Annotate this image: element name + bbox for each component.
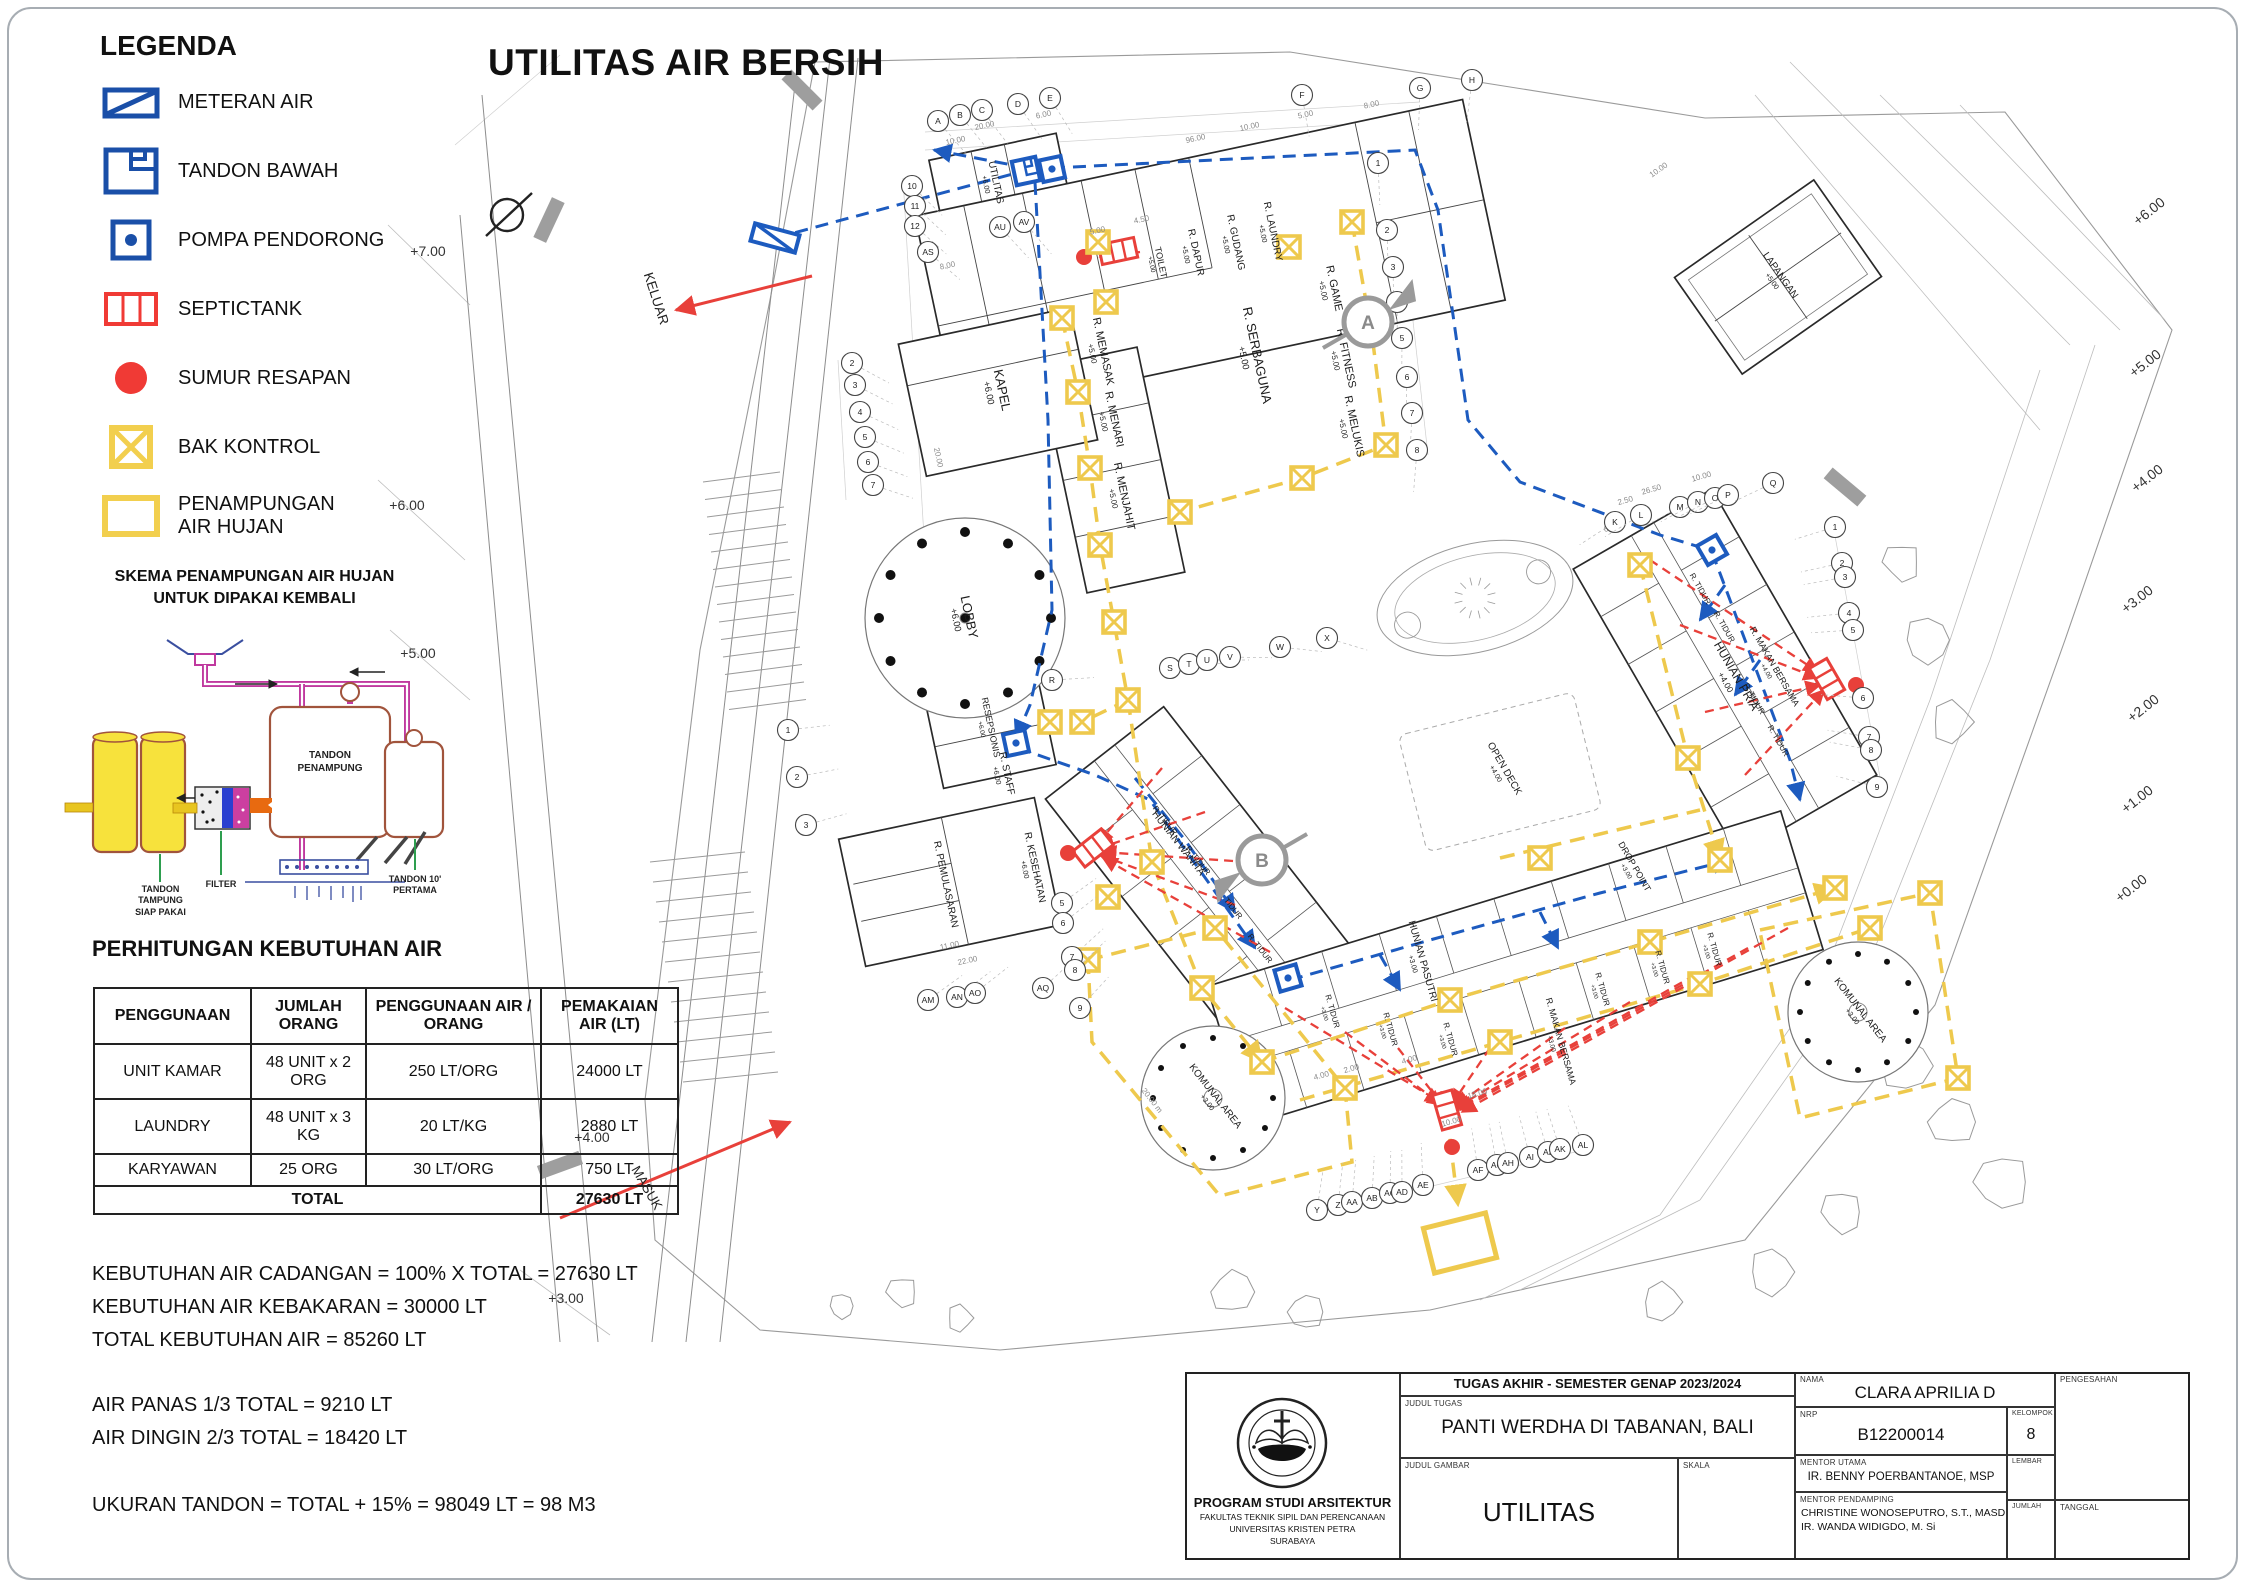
svg-text:2: 2: [795, 772, 800, 782]
svg-text:4: 4: [858, 407, 863, 417]
svg-text:B: B: [1255, 851, 1269, 872]
grid-bubble: A: [928, 111, 949, 132]
grid-bubble: AE: [1413, 1175, 1434, 1196]
kelompok-label: KELOMPOK: [2012, 1410, 2053, 1417]
svg-text:AE: AE: [1417, 1180, 1429, 1190]
legend-item-label: TANDON BAWAH: [178, 160, 338, 183]
grid-bubble: 11: [905, 196, 926, 217]
sumur-symbol: [1060, 845, 1076, 861]
sheet-title: UTILITAS: [1401, 1497, 1677, 1528]
booster-pump-icon: [100, 214, 162, 266]
svg-text:22.00: 22.00: [957, 954, 979, 967]
svg-text:Z: Z: [1335, 1200, 1340, 1210]
titleblock-kelompok-cell: KELOMPOK 8: [2007, 1407, 2055, 1455]
svg-text:KELUAR: KELUAR: [641, 271, 672, 327]
titleblock-skala-cell: SKALA: [1678, 1458, 1795, 1560]
legend-item-label: METERAN AIR: [178, 91, 314, 114]
legend-title: LEGENDA: [100, 30, 480, 62]
grid-bubble: D: [1008, 94, 1029, 115]
svg-text:6: 6: [1061, 918, 1066, 928]
grid-bubble: 5: [855, 427, 876, 448]
grid-bubble: 10: [902, 176, 923, 197]
grid-bubble: 2: [1377, 220, 1398, 241]
svg-text:5: 5: [1400, 333, 1405, 343]
svg-text:2.50: 2.50: [1617, 494, 1635, 507]
legend-item-meteran-air: METERAN AIR: [100, 76, 480, 128]
grid-bubble: AQ: [1033, 978, 1054, 999]
pond: [1365, 521, 1585, 674]
control-box-icon: [100, 421, 162, 473]
svg-text:F: F: [1299, 90, 1304, 100]
grid-bubble: AA: [1342, 1192, 1363, 1213]
institution-university: UNIVERSITAS KRISTEN PETRA: [1186, 1524, 1399, 1535]
titleblock-course-cell: TUGAS AKHIR - SEMESTER GENAP 2023/2024: [1400, 1372, 1795, 1396]
svg-text:10.00: 10.00: [1690, 469, 1712, 483]
mentor-utama-name: IR. BENNY POERBANTANOE, MSP: [1796, 1471, 2006, 1483]
grid-bubble: AF: [1468, 1160, 1489, 1181]
svg-text:8.00: 8.00: [1363, 98, 1381, 110]
legend-item-label: POMPA PENDORONG: [178, 229, 384, 252]
svg-text:U: U: [1204, 655, 1210, 665]
legend-panel: LEGENDA METERAN AIR TANDON BAWAH POMPA P…: [100, 30, 480, 559]
table-cell: 750 LT: [541, 1154, 678, 1186]
bak-symbol: [1629, 554, 1651, 576]
pump-symbol: [1274, 964, 1301, 991]
svg-text:L: L: [1639, 510, 1644, 520]
svg-text:7: 7: [1410, 408, 1415, 418]
legend-item-penampungan: PENAMPUNGAN AIR HUJAN: [100, 490, 480, 542]
schema-label-tandon-pertama: TANDON 10' PERTAMA: [377, 874, 453, 897]
svg-text:Y: Y: [1314, 1205, 1320, 1215]
svg-text:G: G: [1417, 83, 1424, 93]
table-header-cell: PEMAKAIAN AIR (LT): [541, 988, 678, 1044]
skala-label: SKALA: [1683, 1461, 1710, 1470]
mentor-utama-label: MENTOR UTAMA: [1800, 1458, 1867, 1467]
grid-bubble: 9: [1070, 998, 1091, 1019]
svg-text:10.00: 10.00: [945, 134, 967, 147]
grid-bubble: 4: [850, 402, 871, 423]
mentor-pendamping-name-2: IR. WANDA WIDIGDO, M. Si: [1796, 1521, 2006, 1533]
svg-text:11: 11: [911, 201, 920, 211]
tandon-symbol: [1012, 157, 1040, 185]
svg-text:9: 9: [1875, 782, 1880, 792]
site-entry-arrow: [676, 276, 812, 310]
bak-symbol: [1067, 381, 1089, 403]
table-header-cell: PENGGUNAAN AIR / ORANG: [366, 988, 541, 1044]
nrp-label: NRP: [1800, 1410, 1818, 1419]
table-cell: 250 LT/ORG: [366, 1044, 541, 1099]
sumur-symbol: [1444, 1139, 1460, 1155]
table-cell: 48 UNIT x 2 ORG: [251, 1044, 366, 1099]
svg-text:20.00: 20.00: [974, 119, 996, 132]
bak-symbol: [1141, 851, 1163, 873]
bak-symbol: [1079, 457, 1101, 479]
bak-symbol: [1709, 849, 1731, 871]
grid-bubble: S: [1160, 658, 1181, 679]
grid-bubble: 8: [1861, 740, 1882, 761]
svg-text:9: 9: [1078, 1003, 1083, 1013]
table-cell: 48 UNIT x 3 KG: [251, 1099, 366, 1154]
svg-text:+6.00: +6.00: [2130, 194, 2168, 229]
legend-item-bak-kontrol: BAK KONTROL: [100, 421, 480, 473]
svg-text:10.00: 10.00: [1648, 160, 1670, 179]
table-cell: 25 ORG: [251, 1154, 366, 1186]
svg-text:D: D: [1015, 99, 1021, 109]
svg-text:7: 7: [871, 480, 876, 490]
grid-bubble: AV: [1014, 212, 1035, 233]
room-label: R. MELUKIS+5.00: [1332, 395, 1366, 460]
svg-text:+2.00: +2.00: [2124, 691, 2162, 726]
institution-faculty: FAKULTAS TEKNIK SIPIL DAN PERENCANAAN: [1186, 1512, 1399, 1523]
titleblock-jumlah-cell: JUMLAH: [2007, 1500, 2055, 1560]
grid-bubble: AD: [1392, 1182, 1413, 1203]
bak-symbol: [1919, 882, 1941, 904]
svg-text:+3.00: +3.00: [2118, 582, 2156, 617]
grid-bubble: 9: [1867, 777, 1888, 798]
note-line: TOTAL KEBUTUHAN AIR = 85260 LT: [92, 1324, 638, 1357]
grid-bubble: AL: [1573, 1135, 1594, 1156]
svg-text:5: 5: [1060, 898, 1065, 908]
grid-bubble: 6: [1853, 688, 1874, 709]
grid-bubble: 5: [1843, 620, 1864, 641]
bak-symbol: [1071, 711, 1093, 733]
grid-bubble: 2: [842, 353, 863, 374]
titleblock-mentor-pendamping-cell: MENTOR PENDAMPING CHRISTINE WONOSEPUTRO,…: [1795, 1492, 2007, 1560]
grid-bubble: 8: [1065, 960, 1086, 981]
institution-name: PROGRAM STUDI ARSITEKTUR: [1186, 1495, 1399, 1512]
titleblock-pengesahan-cell: PENGESAHAN: [2055, 1372, 2190, 1500]
titleblock-tanggal-cell: TANGGAL: [2055, 1500, 2190, 1560]
svg-text:6.00: 6.00: [1035, 108, 1053, 120]
bak-symbol: [1947, 1067, 1969, 1089]
bak-symbol: [1051, 307, 1073, 329]
svg-text:X: X: [1324, 633, 1330, 643]
tanggal-label: TANGGAL: [2060, 1503, 2099, 1512]
page-title: UTILITAS AIR BERSIH: [488, 42, 884, 84]
svg-text:5: 5: [1851, 625, 1856, 635]
bak-symbol: [1529, 847, 1551, 869]
table-cell: LAUNDRY: [94, 1099, 251, 1154]
legend-item-tandon-bawah: TANDON BAWAH: [100, 145, 480, 197]
grid-bubble: 2: [787, 767, 808, 788]
grid-bubble: X: [1317, 628, 1338, 649]
grid-bubble: B: [950, 105, 971, 126]
course-title: TUGAS AKHIR - SEMESTER GENAP 2023/2024: [1401, 1376, 1794, 1391]
drawing-sheet: UTILITAS+6.00TOILET+5.00R. DAPUR+5.00R. …: [0, 0, 2245, 1587]
grid-bubble: 3: [1835, 567, 1856, 588]
institution-city: SURABAYA: [1186, 1536, 1399, 1547]
jumlah-label: JUMLAH: [2012, 1503, 2041, 1510]
grid-bubble: 12: [905, 216, 926, 237]
grid-bubble: G: [1410, 78, 1431, 99]
svg-text:AS: AS: [922, 247, 934, 257]
judul-tugas-label: JUDUL TUGAS: [1405, 1399, 1462, 1408]
note-line: UKURAN TANDON = TOTAL + 15% = 98049 LT =…: [92, 1489, 596, 1522]
bak-symbol: [1824, 877, 1846, 899]
svg-text:1: 1: [1376, 158, 1381, 168]
svg-text:AF: AF: [1473, 1165, 1484, 1175]
grid-bubble: 5: [1392, 328, 1413, 349]
svg-text:+1.00: +1.00: [2118, 782, 2156, 817]
table-cell: KARYAWAN: [94, 1154, 251, 1186]
bak-symbol: [1689, 973, 1711, 995]
table-header-cell: PENGGUNAAN: [94, 988, 251, 1044]
svg-text:AK: AK: [1554, 1144, 1566, 1154]
grid-bubble: L: [1631, 505, 1652, 526]
grid-bubble: AU: [990, 217, 1011, 238]
svg-text:3: 3: [804, 820, 809, 830]
grid-bubble: AH: [1498, 1153, 1519, 1174]
svg-text:A: A: [935, 116, 941, 126]
svg-text:3: 3: [1391, 262, 1396, 272]
grid-bubble: E: [1040, 88, 1061, 109]
svg-text:5: 5: [863, 432, 868, 442]
penampungan-symbol: [1423, 1213, 1496, 1273]
svg-text:Q: Q: [1770, 478, 1777, 488]
grid-bubble: 6: [1397, 367, 1418, 388]
bak-symbol: [1089, 534, 1111, 556]
skema-title: SKEMA PENAMPUNGAN AIR HUJAN UNTUK DIPAKA…: [62, 566, 447, 609]
svg-text:T: T: [1186, 659, 1191, 669]
svg-text:AA: AA: [1346, 1197, 1358, 1207]
table-total-value: 27630 LT: [541, 1186, 678, 1214]
bak-symbol: [1334, 1077, 1356, 1099]
svg-text:AI: AI: [1526, 1152, 1534, 1162]
table-cell: 24000 LT: [541, 1044, 678, 1099]
svg-text:2: 2: [850, 358, 855, 368]
titleblock-lembar-cell: LEMBAR: [2007, 1455, 2055, 1500]
svg-text:AL: AL: [1578, 1140, 1589, 1150]
titleblock-mentor-utama-cell: MENTOR UTAMA IR. BENNY POERBANTANOE, MSP: [1795, 1455, 2007, 1492]
bak-symbol: [1291, 467, 1313, 489]
mentor-pendamping-name-1: CHRISTINE WONOSEPUTRO, S.T., MASD: [1796, 1507, 2006, 1519]
grid-bubble: 1: [1825, 517, 1846, 538]
mentor-pendamping-label: MENTOR PENDAMPING: [1800, 1495, 1894, 1504]
student-id: B12200014: [1796, 1425, 2006, 1445]
svg-text:6: 6: [1861, 693, 1866, 703]
svg-text:+4.00: +4.00: [2128, 461, 2166, 496]
note-line: KEBUTUHAN AIR CADANGAN = 100% X TOTAL = …: [92, 1258, 638, 1291]
bak-symbol: [1341, 211, 1363, 233]
grid-bubble: 7: [1402, 403, 1423, 424]
titleblock-judul-tugas-cell: JUDUL TUGAS PANTI WERDHA DI TABANAN, BAL…: [1400, 1396, 1795, 1458]
svg-text:AN: AN: [951, 992, 963, 1002]
svg-text:AD: AD: [1396, 1187, 1408, 1197]
svg-text:3: 3: [853, 380, 858, 390]
legend-item-label: SEPTICTANK: [178, 298, 302, 321]
legend-item-pompa-pendorong: POMPA PENDORONG: [100, 214, 480, 266]
grid-bubble: 6: [1053, 913, 1074, 934]
legend-item-label: SUMUR RESAPAN: [178, 367, 351, 390]
svg-text:R: R: [1049, 675, 1055, 685]
schema-label-tandon-penampung: TANDON PENAMPUNG: [272, 750, 388, 775]
svg-text:H: H: [1469, 75, 1475, 85]
svg-text:6: 6: [1405, 372, 1410, 382]
water-meter-icon: [100, 76, 162, 128]
svg-text:5.00: 5.00: [1297, 108, 1315, 120]
soak-well-icon: [100, 352, 162, 404]
grid-bubble: 3: [796, 815, 817, 836]
bak-symbol: [1103, 611, 1125, 633]
svg-text:8: 8: [1073, 965, 1078, 975]
grid-bubble: AN: [947, 987, 968, 1008]
svg-text:+5.00: +5.00: [2126, 346, 2164, 381]
grid-bubble: P: [1718, 485, 1739, 506]
titleblock-judul-gambar-cell: JUDUL GAMBAR UTILITAS: [1400, 1458, 1678, 1560]
rainwater-schema: TANDON PENAMPUNG TANDON TAMPUNG SIAP PAK…: [55, 632, 445, 927]
rainwater-storage-icon: [100, 490, 162, 542]
judul-gambar-label: JUDUL GAMBAR: [1405, 1461, 1470, 1470]
svg-text:W: W: [1276, 642, 1284, 652]
svg-text:B: B: [957, 110, 963, 120]
svg-text:6: 6: [866, 457, 871, 467]
svg-text:AQ: AQ: [1037, 983, 1050, 993]
svg-text:26.50: 26.50: [1640, 482, 1662, 496]
table-cell: 2880 LT: [541, 1099, 678, 1154]
svg-text:AM: AM: [922, 995, 935, 1005]
titleblock-logo-cell: PROGRAM STUDI ARSITEKTUR FAKULTAS TEKNIK…: [1185, 1372, 1400, 1560]
bak-symbol: [1039, 711, 1061, 733]
bak-symbol: [1095, 291, 1117, 313]
bak-symbol: [1204, 917, 1226, 939]
schema-label-filter: FILTER: [186, 879, 256, 890]
grid-bubble: U: [1197, 650, 1218, 671]
grid-bubble: Y: [1307, 1200, 1328, 1221]
student-name: CLARA APRILIA D: [1796, 1383, 2054, 1403]
grid-bubble: F: [1292, 85, 1313, 106]
project-title: PANTI WERDHA DI TABANAN, BALI: [1401, 1417, 1794, 1439]
legend-item-sumur-resapan: SUMUR RESAPAN: [100, 352, 480, 404]
grid-bubble: Q: [1763, 473, 1784, 494]
bak-symbol: [1375, 434, 1397, 456]
titleblock-nama-cell: NAMA CLARA APRILIA D: [1795, 1372, 2055, 1407]
pump-symbol: [1039, 156, 1065, 182]
svg-text:3: 3: [1843, 572, 1848, 582]
svg-text:AO: AO: [969, 988, 982, 998]
svg-text:1: 1: [1833, 522, 1838, 532]
legend-item-septictank: SEPTICTANK: [100, 283, 480, 335]
svg-text:AU: AU: [994, 222, 1006, 232]
water-demand-table: PENGGUNAANJUMLAH ORANGPENGGUNAAN AIR / O…: [93, 987, 679, 1215]
titleblock-nrp-cell: NRP B12200014: [1795, 1407, 2007, 1455]
svg-text:AB: AB: [1366, 1193, 1378, 1203]
bak-symbol: [1169, 501, 1191, 523]
svg-text:12: 12: [910, 221, 920, 231]
svg-text:A: A: [1361, 313, 1375, 334]
calc-notes-1: KEBUTUHAN AIR CADANGAN = 100% X TOTAL = …: [92, 1258, 638, 1356]
grid-bubble: 1: [778, 720, 799, 741]
svg-text:E: E: [1047, 93, 1053, 103]
svg-text:AH: AH: [1502, 1158, 1514, 1168]
calc-title: PERHITUNGAN KEBUTUHAN AIR: [92, 936, 442, 962]
grid-bubble: V: [1220, 647, 1241, 668]
svg-text:V: V: [1227, 652, 1233, 662]
grid-bubble: AS: [918, 242, 939, 263]
table-header-cell: JUMLAH ORANG: [251, 988, 366, 1044]
grid-bubble: 5: [1052, 893, 1073, 914]
calc-notes-2: AIR PANAS 1/3 TOTAL = 9210 LT AIR DINGIN…: [92, 1389, 407, 1455]
svg-text:K: K: [1612, 517, 1618, 527]
grid-bubble: 3: [845, 375, 866, 396]
table-total-label: TOTAL: [94, 1186, 541, 1214]
svg-text:10: 10: [907, 181, 917, 191]
septictank-icon: [100, 283, 162, 335]
pengesahan-label: PENGESAHAN: [2060, 1375, 2118, 1384]
table-cell: UNIT KAMAR: [94, 1044, 251, 1099]
legend-item-label: BAK KONTROL: [178, 436, 320, 459]
bak-symbol: [1677, 747, 1699, 769]
table-cell: 20 LT/KG: [366, 1099, 541, 1154]
grid-bubble: R: [1042, 670, 1063, 691]
svg-text:+0.00: +0.00: [2112, 871, 2150, 906]
svg-text:8: 8: [1869, 745, 1874, 755]
svg-text:8: 8: [1415, 445, 1420, 455]
svg-text:10.00: 10.00: [1239, 120, 1261, 133]
grid-bubble: 1: [1368, 153, 1389, 174]
svg-text:1: 1: [786, 725, 791, 735]
grid-bubble: AO: [965, 983, 986, 1004]
university-seal-icon: [1234, 1395, 1330, 1491]
grid-bubble: 8: [1407, 440, 1428, 461]
group-number: 8: [2008, 1426, 2054, 1444]
room-label: OPEN DECK+4.00: [1477, 740, 1524, 801]
svg-text:C: C: [979, 105, 985, 115]
grid-bubble: 3: [1383, 257, 1404, 278]
svg-text:AV: AV: [1019, 217, 1030, 227]
note-line: AIR DINGIN 2/3 TOTAL = 18420 LT: [92, 1422, 407, 1455]
meter-symbol: [750, 223, 799, 252]
svg-text:4: 4: [1847, 608, 1852, 618]
grid-bubble: K: [1605, 512, 1626, 533]
svg-text:S: S: [1167, 663, 1173, 673]
grid-bubble: T: [1179, 654, 1200, 675]
grid-bubble: 7: [863, 475, 884, 496]
bak-symbol: [1489, 1031, 1511, 1053]
ground-tank-icon: [100, 145, 162, 197]
grid-bubble: C: [972, 100, 993, 121]
svg-text:N: N: [1695, 497, 1701, 507]
bak-symbol: [1117, 689, 1139, 711]
bak-symbol: [1251, 1051, 1273, 1073]
grid-bubble: AK: [1550, 1139, 1571, 1160]
grid-bubble: 6: [858, 452, 879, 473]
bak-symbol: [1439, 989, 1461, 1011]
table-cell: 30 LT/ORG: [366, 1154, 541, 1186]
legend-item-label: PENAMPUNGAN AIR HUJAN: [178, 493, 335, 539]
bak-symbol: [1191, 977, 1213, 999]
grid-bubble: H: [1462, 70, 1483, 91]
svg-text:2: 2: [1385, 225, 1390, 235]
note-line: AIR PANAS 1/3 TOTAL = 9210 LT: [92, 1389, 407, 1422]
bak-symbol: [1859, 917, 1881, 939]
svg-text:P: P: [1725, 490, 1731, 500]
note-line: KEBUTUHAN AIR KEBAKARAN = 30000 LT: [92, 1291, 638, 1324]
grid-bubble: W: [1270, 637, 1291, 658]
calc-notes-3: UKURAN TANDON = TOTAL + 15% = 98049 LT =…: [92, 1489, 596, 1522]
bak-symbol: [1097, 886, 1119, 908]
lembar-label: LEMBAR: [2012, 1458, 2042, 1465]
grid-bubble: AM: [918, 990, 939, 1011]
